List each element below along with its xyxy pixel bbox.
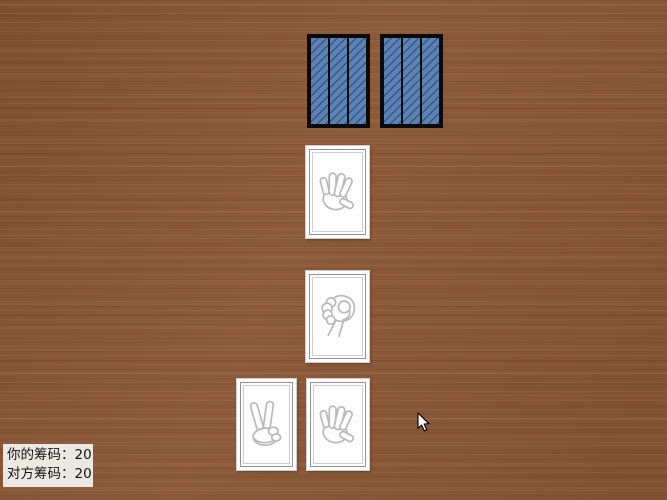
- opponent-card-back-2: [380, 34, 443, 128]
- arrow-cursor-icon: [417, 412, 431, 433]
- card-back-pattern: [330, 38, 347, 124]
- card-back-pattern: [311, 38, 328, 124]
- player-hand-card-paper[interactable]: [306, 378, 370, 471]
- player-played-card: [305, 270, 370, 363]
- card-back-pattern: [384, 38, 401, 124]
- opponent-chips-value: 20: [75, 465, 93, 484]
- opponent-card-back-1: [307, 34, 370, 128]
- opponent-played-card: [305, 145, 370, 239]
- scissors-hand-icon: [247, 398, 287, 452]
- chips-panel: 你的筹码： 20 对方筹码： 20: [3, 444, 93, 487]
- your-chips-label: 你的筹码：: [7, 446, 75, 465]
- opponent-chips-label: 对方筹码：: [7, 465, 75, 484]
- your-chips-value: 20: [75, 446, 93, 465]
- player-hand-card-scissors[interactable]: [236, 378, 297, 471]
- card-back-pattern: [403, 38, 420, 124]
- opponent-chips-row: 对方筹码： 20: [7, 465, 89, 484]
- your-chips-row: 你的筹码： 20: [7, 446, 89, 465]
- paper-hand-icon: [318, 400, 358, 450]
- game-table: 你的筹码： 20 对方筹码： 20: [0, 0, 667, 500]
- card-back-pattern: [422, 38, 439, 124]
- card-back-pattern: [349, 38, 366, 124]
- rock-fist-icon: [318, 291, 358, 343]
- paper-hand-icon: [318, 167, 358, 217]
